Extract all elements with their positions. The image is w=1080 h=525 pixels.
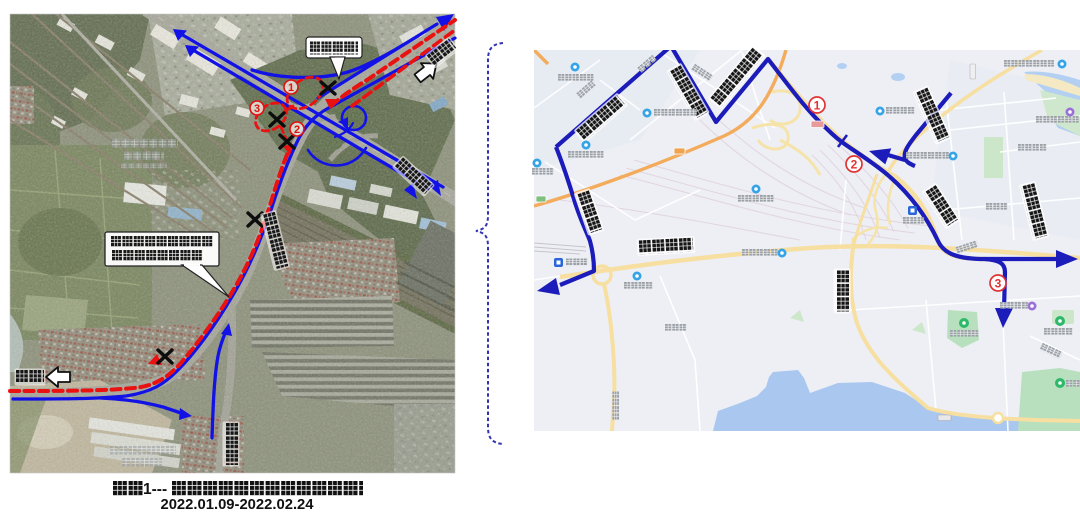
svg-text:1---: 1--- <box>143 481 167 498</box>
svg-text:3: 3 <box>254 103 260 115</box>
svg-text:2022.01.09-2022.02.24: 2022.01.09-2022.02.24 <box>160 497 314 513</box>
svg-text:1: 1 <box>288 82 294 94</box>
svg-text:2: 2 <box>294 124 300 136</box>
